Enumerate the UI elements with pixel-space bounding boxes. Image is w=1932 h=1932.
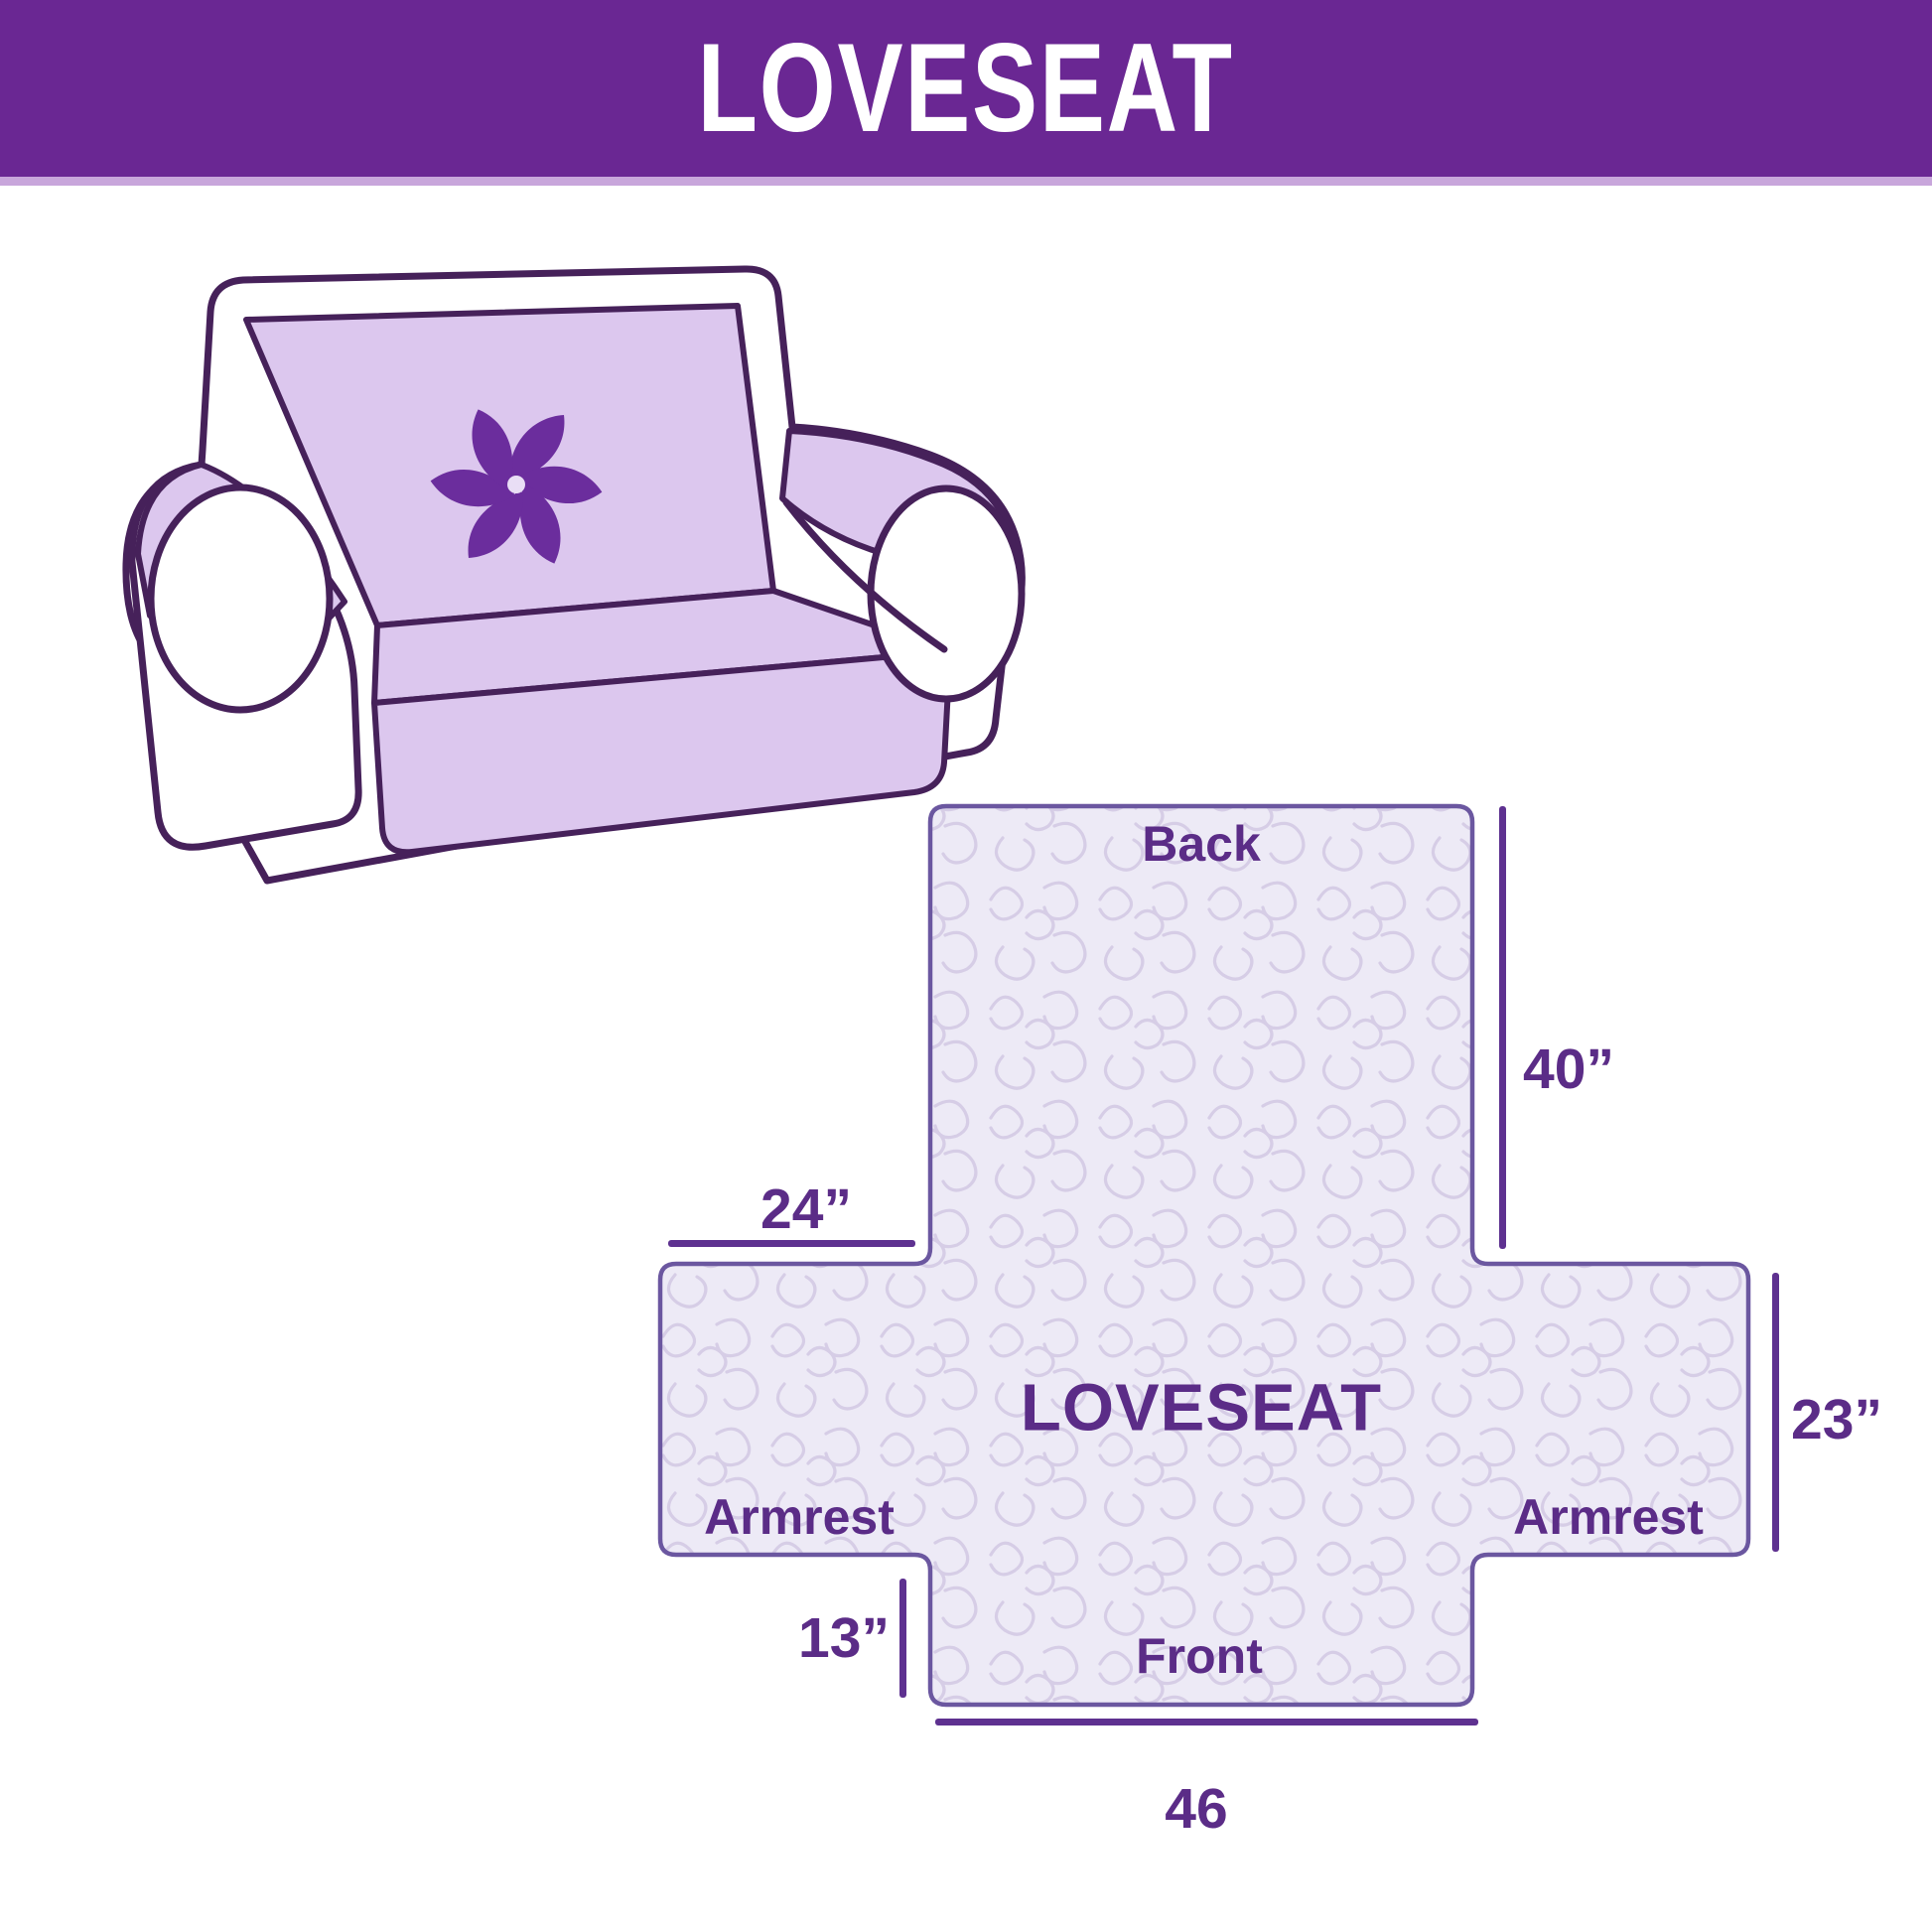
dimension-line-40 (1499, 806, 1506, 1249)
cover-cross-shape (660, 806, 1748, 1705)
sofa-left-arm-roll (151, 487, 330, 710)
dimension-line-13 (899, 1579, 906, 1698)
label-dim-23: 23” (1791, 1387, 1882, 1452)
label-front: Front (1136, 1627, 1263, 1685)
label-dim-24: 24” (760, 1176, 852, 1242)
sofa-right-arm-roll (871, 488, 1022, 699)
dimension-line-23 (1772, 1273, 1779, 1552)
title-banner: LOVESEAT (0, 0, 1932, 177)
label-dim-40: 40” (1523, 1036, 1614, 1102)
label-loveseat-center: LOVESEAT (1021, 1370, 1382, 1447)
infographic: LOVESEAT (0, 0, 1932, 1932)
label-dim-13: 13” (798, 1605, 890, 1671)
cover-cross-diagram (596, 774, 1817, 1767)
label-armrest-right: Armrest (1513, 1488, 1704, 1546)
page-title: LOVESEAT (698, 16, 1234, 162)
banner-divider (0, 177, 1932, 186)
label-armrest-left: Armrest (704, 1488, 895, 1546)
label-back: Back (1142, 815, 1261, 873)
label-dim-46: 46 (1165, 1776, 1227, 1842)
pinwheel-center (507, 476, 525, 493)
dimension-line-46 (935, 1719, 1478, 1725)
